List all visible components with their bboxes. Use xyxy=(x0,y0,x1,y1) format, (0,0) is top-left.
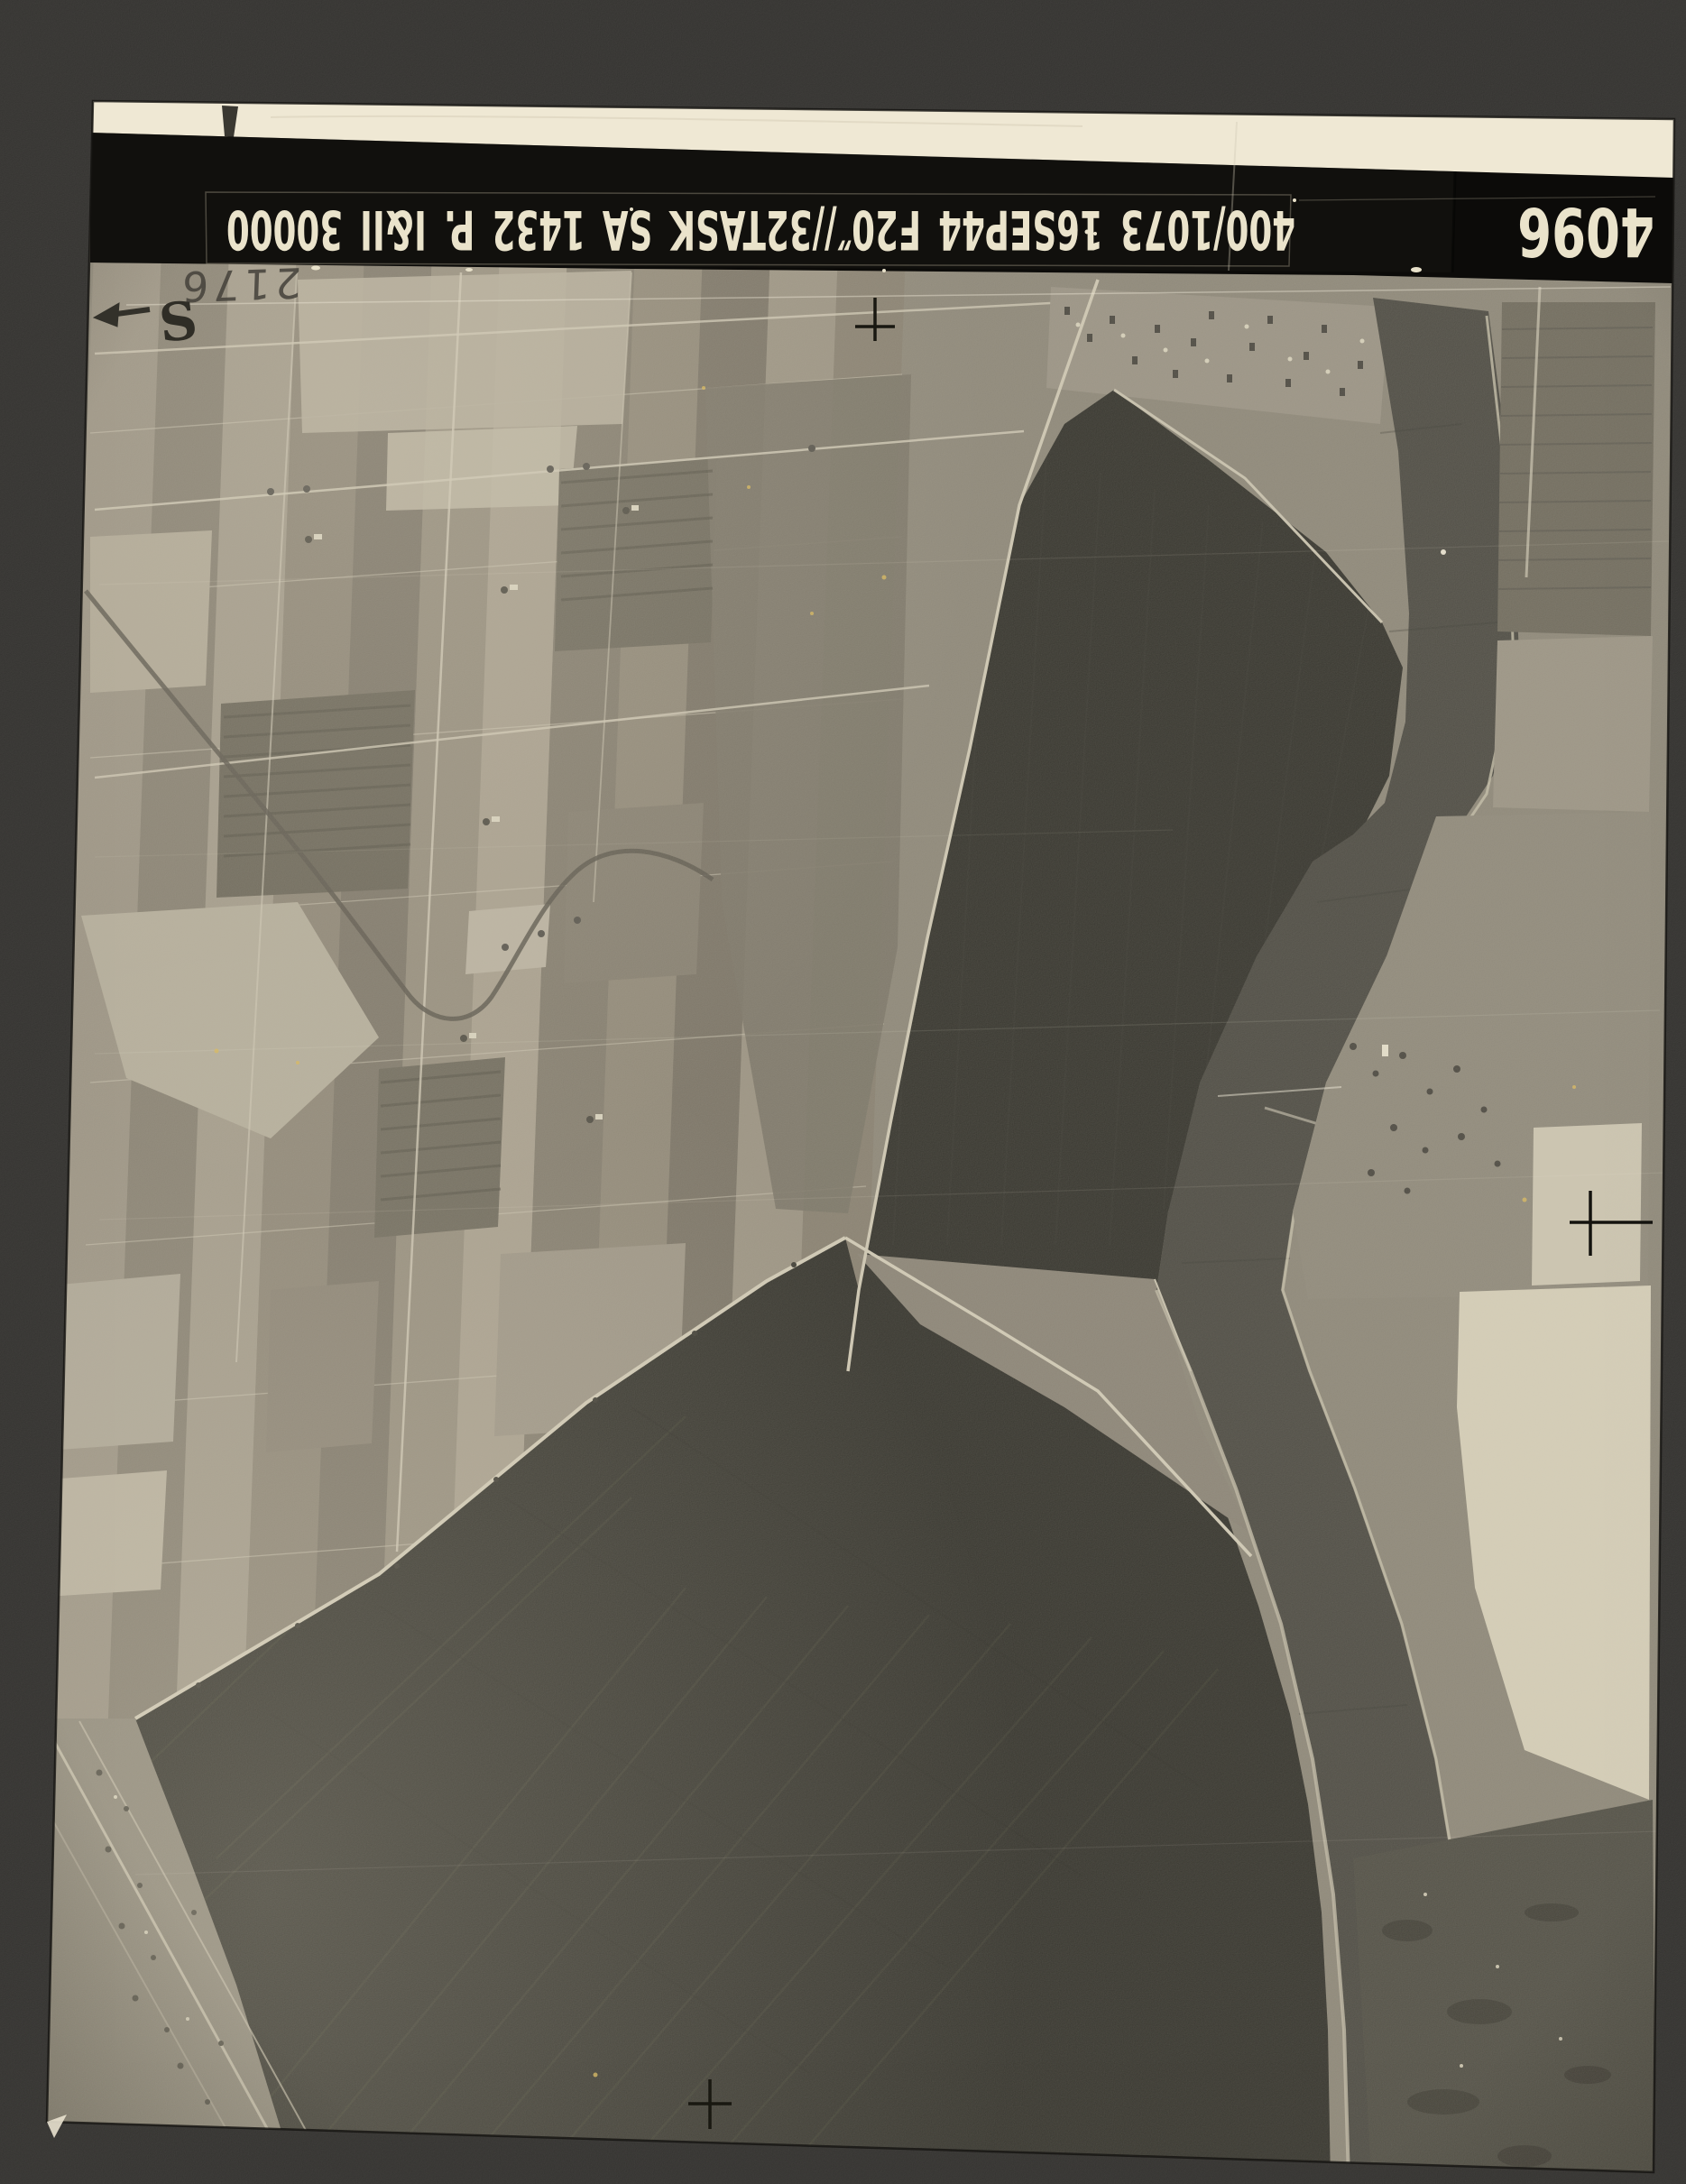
print-number: 4096 xyxy=(1517,192,1654,270)
photo-grain xyxy=(36,90,1686,2184)
aerial-photo-mount: 400/1073 16SEP44 F20″//32TASK SA 1432 P.… xyxy=(0,0,1686,2184)
photo-print: 400/1073 16SEP44 F20″//32TASK SA 1432 P.… xyxy=(36,90,1686,2184)
stamp-text: 400/1073 16SEP44 F20″//32TASK SA 1432 P.… xyxy=(226,198,1295,261)
south-label: S xyxy=(156,290,200,355)
aerial-photo-scan: 400/1073 16SEP44 F20″//32TASK SA 1432 P.… xyxy=(0,0,1686,2184)
handwritten-number: 2176 xyxy=(177,258,302,311)
